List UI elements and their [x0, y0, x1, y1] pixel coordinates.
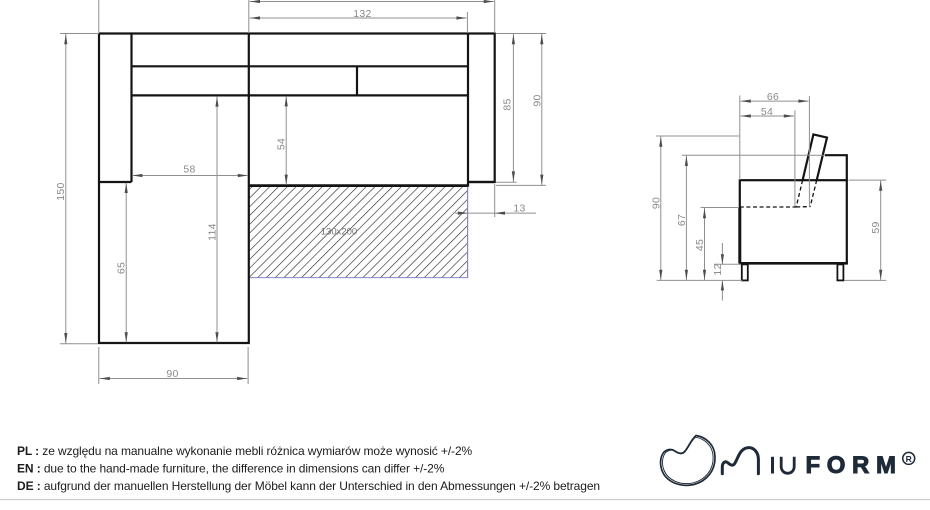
- svg-text:132: 132: [353, 8, 371, 20]
- svg-text:85: 85: [501, 98, 513, 110]
- svg-text:R: R: [906, 454, 912, 464]
- svg-text:66: 66: [767, 91, 779, 103]
- svg-text:45: 45: [694, 239, 706, 251]
- svg-text:59: 59: [870, 221, 882, 233]
- svg-text:EN : due to the hand-made furn: EN : due to the hand-made furniture, the…: [17, 462, 445, 476]
- svg-text:FORM: FORM: [806, 452, 903, 479]
- svg-text:67: 67: [676, 214, 688, 226]
- svg-text:90: 90: [650, 197, 662, 209]
- svg-text:PL : ze względu na manualne wy: PL : ze względu na manualne wykonanie me…: [17, 444, 473, 458]
- svg-text:130x200: 130x200: [321, 227, 357, 238]
- svg-text:12: 12: [712, 263, 724, 275]
- svg-text:150: 150: [55, 182, 67, 200]
- svg-text:90: 90: [531, 94, 543, 106]
- svg-text:65: 65: [116, 262, 128, 274]
- svg-text:90: 90: [166, 368, 178, 380]
- svg-text:DE : aufgrund der manuellen He: DE : aufgrund der manuellen Herstellung …: [17, 479, 600, 493]
- svg-text:54: 54: [276, 138, 288, 150]
- svg-text:114: 114: [206, 223, 218, 241]
- svg-text:13: 13: [513, 203, 525, 215]
- svg-text:58: 58: [183, 164, 195, 176]
- svg-text:54: 54: [761, 106, 773, 118]
